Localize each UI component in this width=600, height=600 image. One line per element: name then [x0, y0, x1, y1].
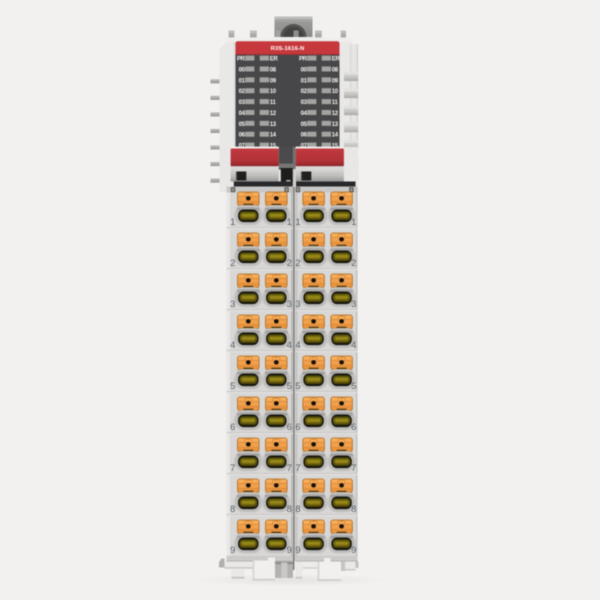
svg-text:05: 05 — [239, 122, 246, 128]
svg-text:05: 05 — [301, 122, 308, 128]
svg-text:08: 08 — [270, 67, 277, 73]
svg-text:R3S-1616-N: R3S-1616-N — [271, 46, 305, 52]
svg-text:2: 2 — [351, 258, 356, 269]
svg-text:08: 08 — [332, 67, 339, 73]
svg-text:7: 7 — [287, 463, 292, 474]
svg-text:00: 00 — [301, 67, 308, 73]
svg-text:PR: PR — [237, 57, 246, 63]
svg-text:06: 06 — [301, 133, 308, 139]
svg-text:13: 13 — [270, 122, 277, 128]
svg-text:7: 7 — [295, 463, 300, 474]
svg-text:4: 4 — [295, 340, 300, 351]
svg-text:6: 6 — [351, 422, 356, 433]
svg-text:02: 02 — [301, 89, 308, 95]
svg-text:4: 4 — [287, 340, 292, 351]
svg-text:9: 9 — [351, 545, 356, 556]
svg-text:04: 04 — [301, 111, 308, 117]
svg-text:3: 3 — [295, 299, 300, 310]
svg-text:13: 13 — [332, 122, 339, 128]
svg-text:10: 10 — [270, 89, 277, 95]
svg-text:1: 1 — [351, 217, 356, 228]
svg-text:9: 9 — [230, 545, 235, 556]
svg-text:11: 11 — [332, 100, 339, 106]
svg-text:6: 6 — [287, 422, 292, 433]
svg-text:12: 12 — [332, 111, 339, 117]
svg-text:7: 7 — [351, 463, 356, 474]
svg-text:11: 11 — [270, 100, 277, 106]
svg-text:ER: ER — [270, 57, 279, 63]
svg-text:6: 6 — [295, 422, 300, 433]
svg-text:9: 9 — [295, 545, 300, 556]
svg-text:5: 5 — [295, 381, 300, 392]
svg-text:8: 8 — [351, 504, 356, 515]
svg-text:09: 09 — [332, 78, 339, 84]
svg-text:02: 02 — [239, 89, 246, 95]
svg-text:06: 06 — [239, 133, 246, 139]
svg-text:4: 4 — [351, 340, 356, 351]
svg-text:8: 8 — [295, 504, 300, 515]
svg-text:PR: PR — [299, 57, 308, 63]
svg-text:9: 9 — [287, 545, 292, 556]
svg-text:2: 2 — [230, 258, 235, 269]
svg-text:01: 01 — [301, 78, 308, 84]
svg-text:12: 12 — [270, 111, 277, 117]
svg-text:8: 8 — [230, 504, 235, 515]
svg-text:3: 3 — [230, 299, 235, 310]
svg-text:ER: ER — [332, 57, 341, 63]
svg-text:1: 1 — [287, 217, 292, 228]
svg-text:5: 5 — [287, 381, 292, 392]
svg-text:5: 5 — [351, 381, 356, 392]
svg-text:6: 6 — [230, 422, 235, 433]
svg-text:00: 00 — [239, 67, 246, 73]
svg-text:01: 01 — [239, 78, 246, 84]
svg-text:8: 8 — [287, 504, 292, 515]
svg-text:5: 5 — [230, 381, 235, 392]
svg-text:1: 1 — [230, 217, 235, 228]
svg-text:14: 14 — [332, 133, 339, 139]
svg-text:2: 2 — [295, 258, 300, 269]
svg-text:2: 2 — [287, 258, 292, 269]
svg-text:09: 09 — [270, 78, 277, 84]
svg-text:7: 7 — [230, 463, 235, 474]
svg-text:03: 03 — [301, 100, 308, 106]
svg-text:03: 03 — [239, 100, 246, 106]
svg-text:3: 3 — [351, 299, 356, 310]
svg-text:3: 3 — [287, 299, 292, 310]
svg-text:04: 04 — [239, 111, 246, 117]
svg-text:1: 1 — [295, 217, 300, 228]
svg-text:10: 10 — [332, 89, 339, 95]
svg-text:4: 4 — [230, 340, 235, 351]
svg-text:14: 14 — [270, 133, 277, 139]
